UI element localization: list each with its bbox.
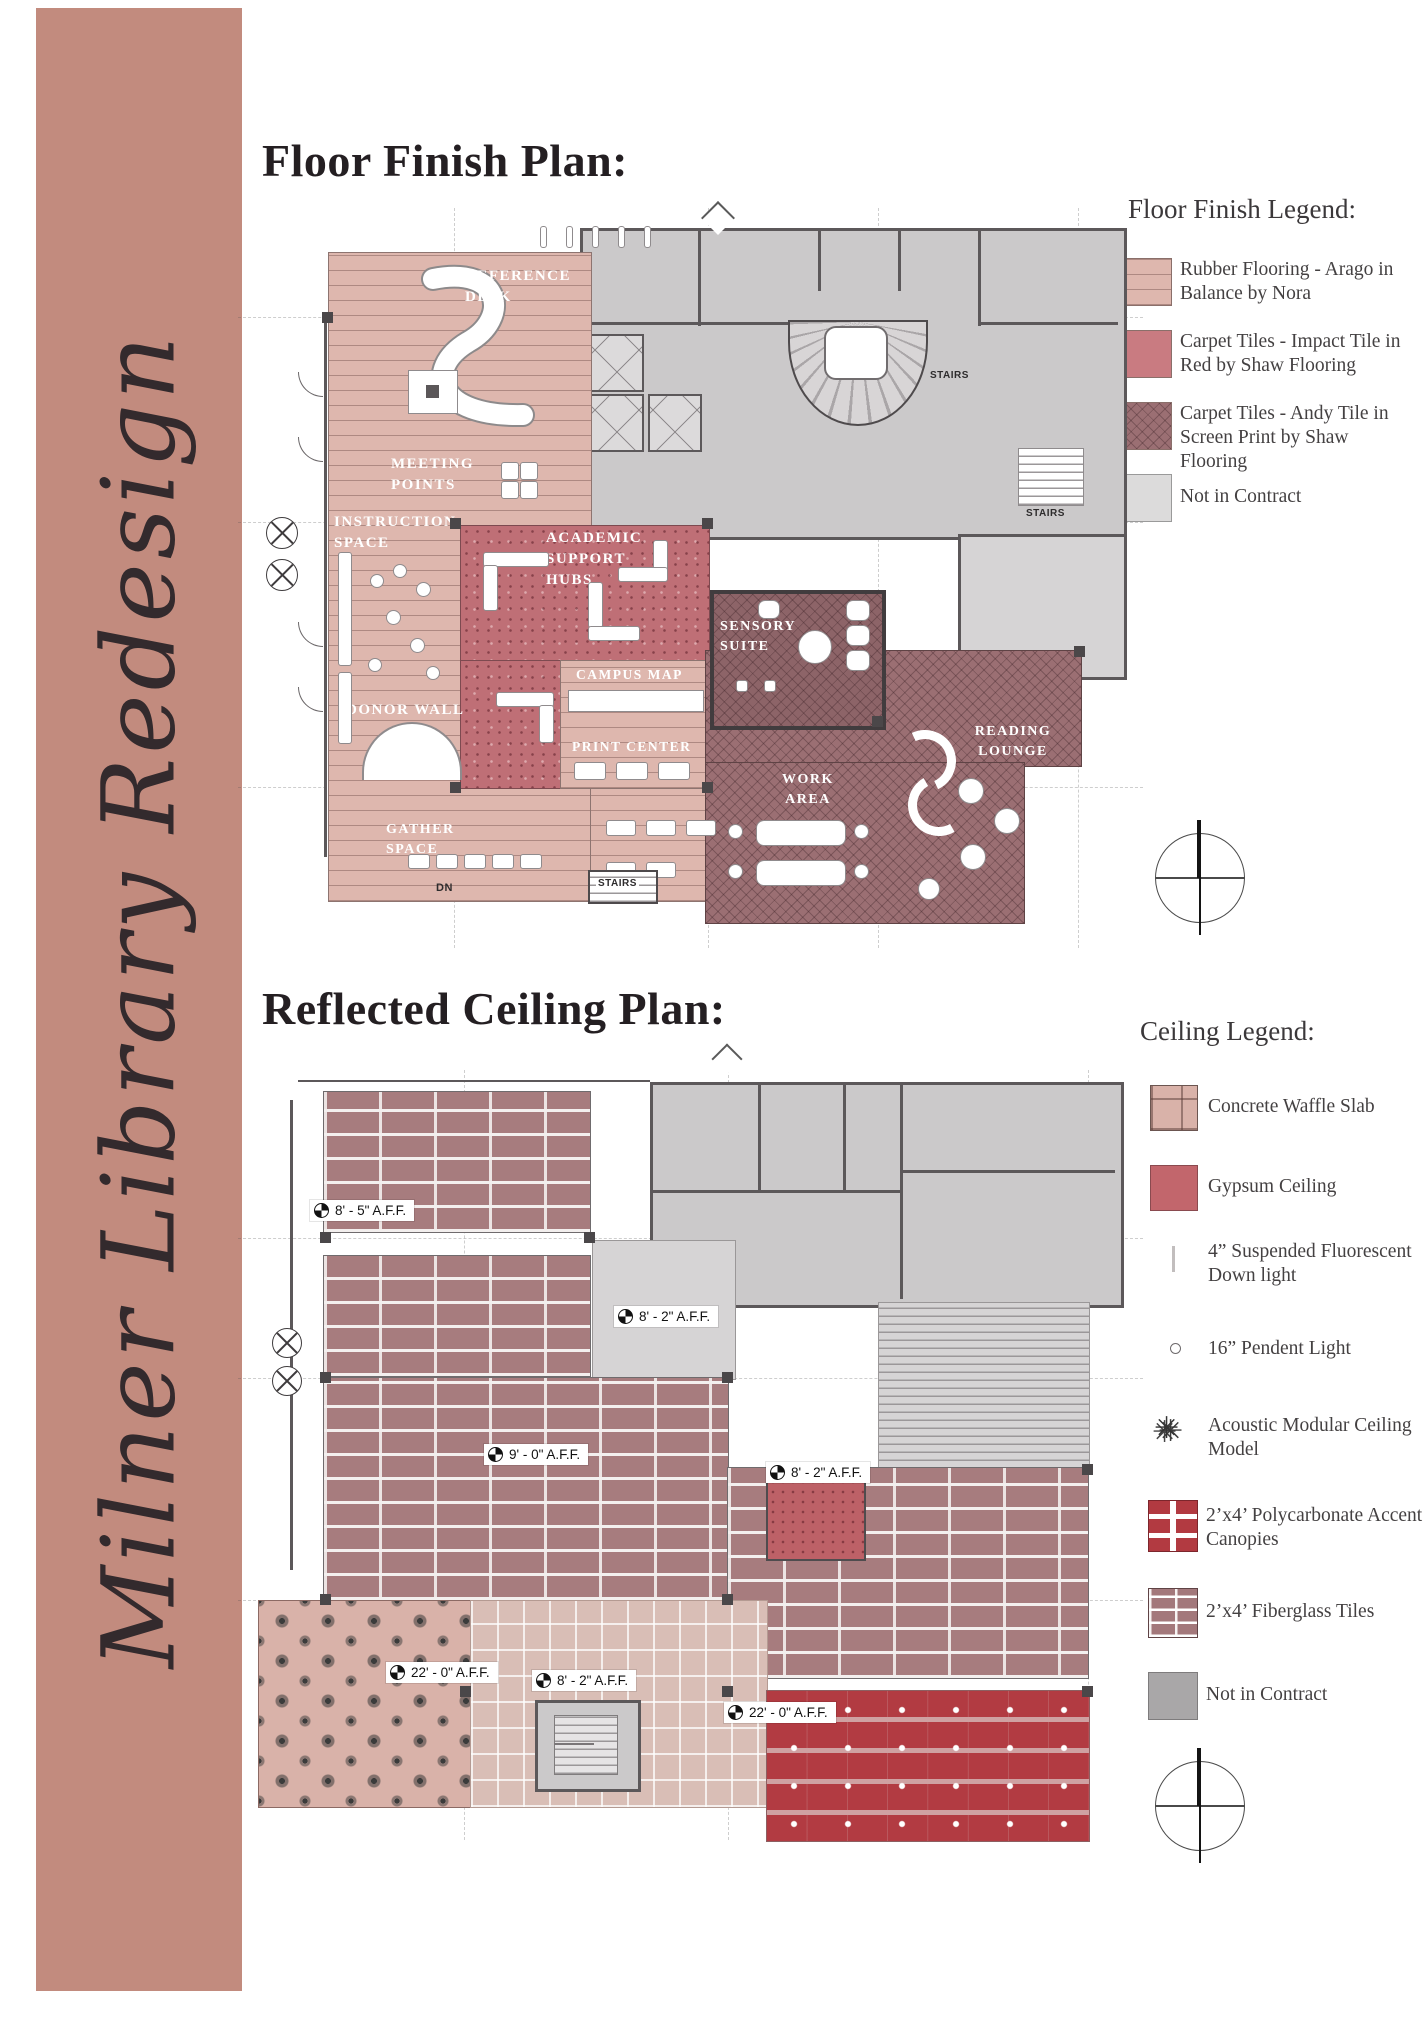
meeting-pod bbox=[520, 481, 538, 499]
fiberglass-swatch bbox=[1148, 1588, 1198, 1638]
column-marker bbox=[722, 1686, 733, 1697]
stair-landing bbox=[824, 326, 888, 380]
lounge-table bbox=[960, 844, 986, 870]
wall bbox=[324, 317, 327, 857]
column-marker bbox=[460, 1686, 471, 1697]
aff-annotation: 8' - 2" A.F.F. bbox=[766, 1462, 870, 1483]
legend-item-label: Gypsum Ceiling bbox=[1208, 1175, 1418, 1199]
aff-text: 22' - 0" A.F.F. bbox=[749, 1705, 828, 1720]
north-arrow-compass bbox=[1152, 1748, 1248, 1866]
campus-map-counter bbox=[568, 690, 704, 712]
stool bbox=[370, 574, 384, 588]
room-label-reference-desk: REFERENCE DESK bbox=[465, 266, 590, 308]
stair-divider bbox=[554, 1743, 594, 1745]
print-table bbox=[574, 762, 606, 780]
north-arrow-compass bbox=[1152, 820, 1248, 938]
aff-annotation: 8' - 2" A.F.F. bbox=[614, 1306, 718, 1327]
legend-item-label: Carpet Tiles - Impact Tile in Red by Sha… bbox=[1180, 330, 1416, 378]
stair-run bbox=[554, 1715, 618, 1775]
rack-bar bbox=[592, 226, 599, 248]
desk-cluster bbox=[588, 626, 640, 641]
not-in-contract-swatch bbox=[1148, 1672, 1198, 1720]
lounge-table bbox=[994, 808, 1020, 834]
canopy-swatch-cross-h bbox=[1149, 1514, 1197, 1519]
legend-item-label: 2’x4’ Polycarbonate Accent Canopies bbox=[1206, 1504, 1426, 1552]
compass-north-line bbox=[1197, 820, 1201, 878]
legend-item-label: Not in Contract bbox=[1180, 485, 1416, 509]
room-label-meeting-points: MEETING POINTS bbox=[391, 454, 496, 496]
room-label-work-area: WORK AREA bbox=[778, 770, 838, 809]
elevator-shaft bbox=[590, 394, 644, 452]
door-arc bbox=[298, 437, 323, 462]
room-label-print-center: PRINT CENTER bbox=[572, 738, 712, 757]
service-point-core bbox=[426, 385, 439, 398]
fiberglass-tile-area bbox=[324, 1378, 728, 1600]
aff-target-icon bbox=[536, 1673, 551, 1688]
not-in-contract-swatch bbox=[1124, 474, 1172, 522]
carpet-andy-swatch bbox=[1124, 402, 1172, 450]
carpet-red-swatch bbox=[1124, 330, 1172, 378]
print-table bbox=[616, 762, 648, 780]
column-marker bbox=[722, 1372, 733, 1383]
reflected-ceiling-plan-drawing: 8' - 5" A.F.F. 8' - 2" A.F.F. 9' - 0" A.… bbox=[258, 1060, 1128, 1850]
aff-text: 8' - 2" A.F.F. bbox=[639, 1309, 710, 1324]
column-marker bbox=[872, 716, 883, 727]
column-marker bbox=[1082, 1686, 1093, 1697]
wall bbox=[981, 322, 1118, 325]
aff-text: 8' - 2" A.F.F. bbox=[791, 1465, 862, 1480]
canopy-swatch-cross-v bbox=[1170, 1501, 1176, 1551]
aff-target-icon bbox=[488, 1447, 503, 1462]
chair bbox=[728, 864, 743, 879]
lounge-table bbox=[918, 878, 940, 900]
room-label-reading-lounge: READING LOUNGE bbox=[958, 722, 1068, 761]
door-arc bbox=[298, 622, 323, 647]
stool bbox=[386, 610, 401, 625]
wall bbox=[758, 1085, 761, 1193]
elevator-shaft bbox=[648, 394, 702, 452]
desk-cluster bbox=[483, 565, 498, 611]
legend-item-label: Carpet Tiles - Andy Tile in Screen Print… bbox=[1180, 402, 1416, 473]
compass-north-line bbox=[1197, 1748, 1201, 1806]
floor-legend-title: Floor Finish Legend: bbox=[1128, 194, 1356, 225]
sensory-cube bbox=[764, 680, 776, 692]
gather-table bbox=[408, 854, 430, 869]
fluorescent-light-icon bbox=[1172, 1246, 1175, 1272]
door-arc bbox=[298, 372, 323, 397]
aff-target-icon bbox=[390, 1665, 405, 1680]
column-marker bbox=[320, 1594, 331, 1605]
column-marker bbox=[450, 782, 461, 793]
rack-bar bbox=[566, 226, 573, 248]
stool bbox=[393, 564, 407, 578]
desk-cluster bbox=[618, 567, 668, 582]
chair bbox=[854, 864, 869, 879]
legend-item-label: Acoustic Modular Ceiling Model bbox=[1208, 1414, 1423, 1462]
instruction-table bbox=[338, 672, 352, 744]
revolving-door-symbol bbox=[272, 1328, 302, 1358]
desk-cluster bbox=[588, 582, 603, 628]
gather-table bbox=[606, 820, 636, 836]
meeting-pod bbox=[520, 462, 538, 480]
lounge-table bbox=[958, 778, 984, 804]
gather-table bbox=[520, 854, 542, 869]
column-marker bbox=[320, 1232, 331, 1243]
aff-annotation: 8' - 5" A.F.F. bbox=[310, 1200, 414, 1221]
room-label-campus-map: CAMPUS MAP bbox=[576, 666, 706, 685]
meeting-pod bbox=[501, 462, 519, 480]
wall bbox=[698, 231, 701, 326]
acoustic-model-icon: ✳ bbox=[1154, 1414, 1179, 1444]
gypsum-ceiling-area bbox=[766, 1475, 866, 1561]
wall bbox=[583, 322, 793, 325]
room-label-donor-wall: DONOR WALL bbox=[346, 700, 506, 721]
canopy-swatch-cross-h bbox=[1149, 1533, 1197, 1538]
sidebar-band: Milner Library Redesign bbox=[36, 8, 242, 1991]
compass-south-line bbox=[1199, 1806, 1201, 1863]
legend-item-label: Concrete Waffle Slab bbox=[1208, 1095, 1418, 1119]
stairs-label: STAIRS bbox=[930, 370, 969, 381]
floor-finish-plan-drawing: STAIRS STAIRS REFERENCE DESK MEETING POI… bbox=[258, 222, 1128, 940]
aff-annotation: 9' - 0" A.F.F. bbox=[484, 1444, 588, 1465]
wall bbox=[900, 1085, 903, 1299]
waffle-slab-acoustic-area bbox=[258, 1600, 472, 1808]
rack-bar bbox=[644, 226, 651, 248]
sensory-seat bbox=[846, 650, 870, 671]
sensory-seat bbox=[758, 600, 780, 619]
sensory-seat bbox=[846, 600, 870, 621]
column-marker bbox=[450, 518, 461, 529]
meeting-pod bbox=[501, 481, 519, 499]
rubber-flooring-swatch bbox=[1124, 258, 1172, 306]
gather-table bbox=[646, 820, 676, 836]
elevator-shaft bbox=[590, 334, 644, 392]
waffle-slab-swatch bbox=[1150, 1085, 1198, 1131]
column-marker bbox=[702, 518, 713, 529]
aff-text: 8' - 5" A.F.F. bbox=[335, 1203, 406, 1218]
desk-cluster bbox=[539, 705, 554, 743]
legend-item-label: 4” Suspended Fluorescent Down light bbox=[1208, 1240, 1423, 1288]
chair bbox=[728, 824, 743, 839]
stair-run bbox=[1018, 448, 1084, 506]
work-table bbox=[756, 820, 846, 846]
instruction-table bbox=[338, 552, 352, 666]
ceiling-legend-title: Ceiling Legend: bbox=[1140, 1016, 1315, 1047]
aff-annotation: 8' - 2" A.F.F. bbox=[532, 1670, 636, 1691]
wall bbox=[818, 231, 821, 291]
stool bbox=[410, 638, 425, 653]
wall bbox=[298, 1080, 650, 1082]
break-mark bbox=[711, 1043, 742, 1074]
column-marker bbox=[1074, 646, 1085, 657]
legend-item-label: Not in Contract bbox=[1206, 1683, 1416, 1707]
legend-item-label: 16” Pendent Light bbox=[1208, 1337, 1418, 1361]
aff-text: 9' - 0" A.F.F. bbox=[509, 1447, 580, 1462]
legend-item-label: Rubber Flooring - Arago in Balance by No… bbox=[1180, 258, 1416, 306]
pendant-light-icon bbox=[1170, 1343, 1181, 1354]
wall bbox=[898, 231, 901, 291]
revolving-door-symbol bbox=[266, 517, 298, 549]
legend-item-label: 2’x4’ Fiberglass Tiles bbox=[1206, 1600, 1416, 1624]
fiberglass-tile-area bbox=[324, 1256, 590, 1376]
floor-plan-title: Floor Finish Plan: bbox=[262, 134, 628, 187]
compass-south-line bbox=[1199, 878, 1201, 935]
aff-annotation: 22' - 0" A.F.F. bbox=[386, 1662, 498, 1683]
presentation-board: { "page": { "sidebar_title": "Milner Lib… bbox=[0, 0, 1428, 2028]
aff-target-icon bbox=[770, 1465, 785, 1480]
aff-annotation: 22' - 0" A.F.F. bbox=[724, 1702, 836, 1723]
revolving-door-symbol bbox=[266, 559, 298, 591]
aff-target-icon bbox=[618, 1309, 633, 1324]
wall bbox=[843, 1085, 846, 1193]
stool bbox=[416, 582, 431, 597]
stool bbox=[426, 666, 440, 680]
gypsum-swatch bbox=[1150, 1165, 1198, 1211]
down-label: DN bbox=[436, 882, 453, 894]
gather-table bbox=[436, 854, 458, 869]
gather-table bbox=[464, 854, 486, 869]
column-marker bbox=[722, 1594, 733, 1605]
aff-target-icon bbox=[314, 1203, 329, 1218]
chair bbox=[854, 824, 869, 839]
stepped-gray-area bbox=[878, 1302, 1090, 1470]
wall bbox=[653, 1190, 903, 1193]
revolving-door-symbol bbox=[272, 1366, 302, 1396]
stairs-label: STAIRS bbox=[1026, 508, 1065, 519]
sensory-seat bbox=[846, 625, 870, 646]
ceiling-plan-title: Reflected Ceiling Plan: bbox=[262, 982, 726, 1035]
column-marker bbox=[1082, 1464, 1093, 1475]
gather-table bbox=[686, 820, 716, 836]
project-title: Milner Library Redesign bbox=[81, 331, 198, 1668]
column-marker bbox=[322, 312, 333, 323]
door-arc bbox=[298, 687, 323, 712]
canopy-swatch bbox=[1148, 1500, 1198, 1552]
wall bbox=[978, 231, 981, 326]
print-table bbox=[658, 762, 690, 780]
column-marker bbox=[584, 1232, 595, 1243]
aff-text: 22' - 0" A.F.F. bbox=[411, 1665, 490, 1680]
gather-table bbox=[492, 854, 514, 869]
stool bbox=[368, 658, 382, 672]
sensory-cube bbox=[736, 680, 748, 692]
wall bbox=[903, 1170, 1115, 1173]
aff-target-icon bbox=[728, 1705, 743, 1720]
column-marker bbox=[320, 1372, 331, 1383]
work-table bbox=[756, 860, 846, 886]
stair-box bbox=[535, 1700, 641, 1792]
rack-bar bbox=[618, 226, 625, 248]
rack-bar bbox=[540, 226, 547, 248]
stairs-label: STAIRS bbox=[596, 878, 639, 889]
column-marker bbox=[702, 782, 713, 793]
sensory-rug bbox=[798, 630, 832, 664]
aff-text: 8' - 2" A.F.F. bbox=[557, 1673, 628, 1688]
